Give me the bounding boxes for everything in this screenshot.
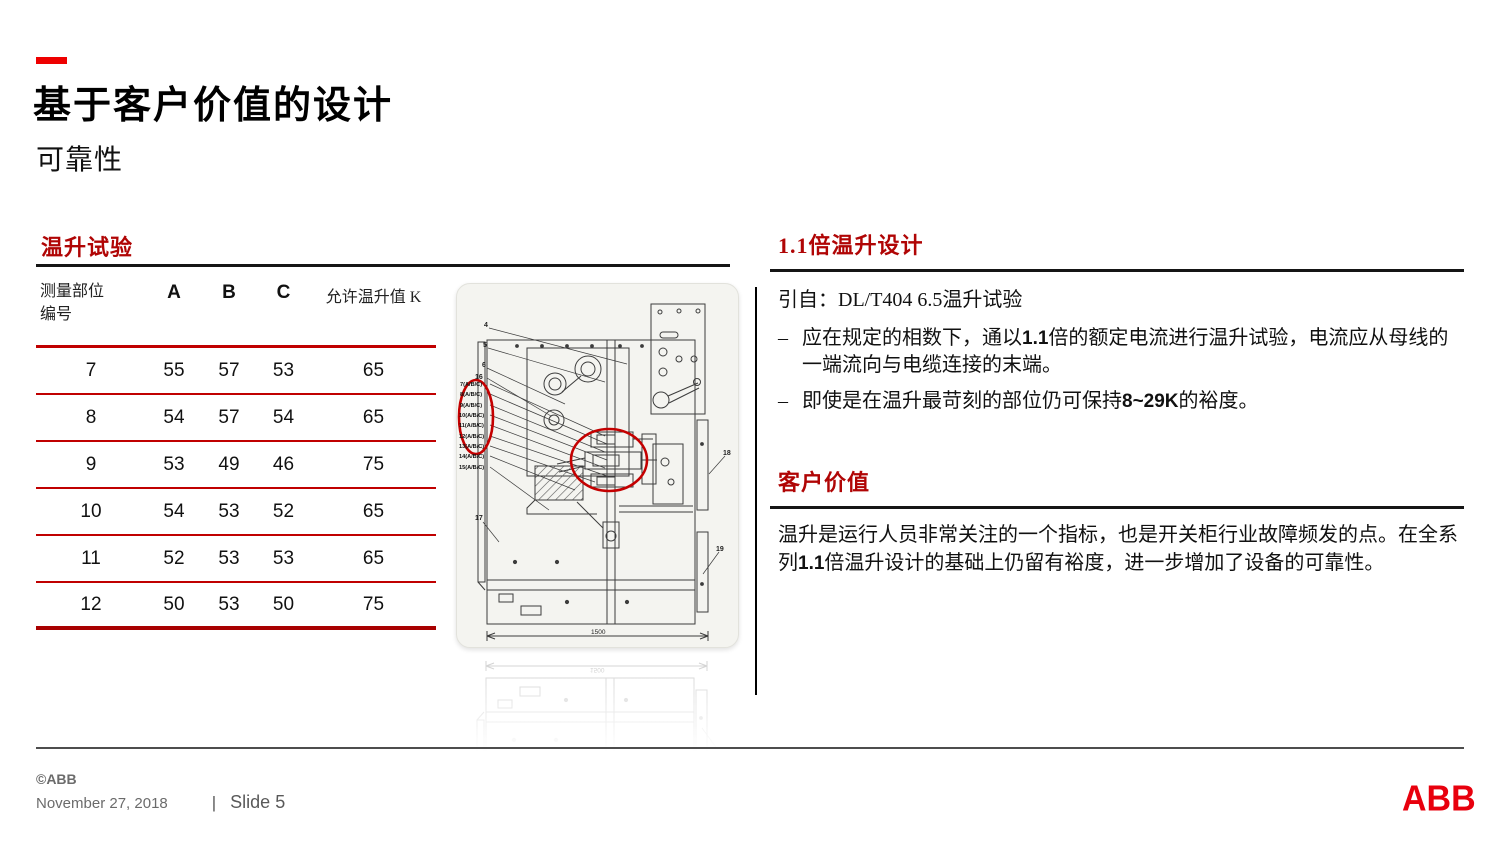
slide-number: Slide 5 bbox=[230, 792, 285, 813]
footer-separator: | bbox=[212, 793, 216, 813]
dimension-label: 1500 bbox=[591, 629, 606, 636]
right-column: 1.1倍温升设计 引自：DL/T404 6.5温升试验 – 应在规定的相数下，通… bbox=[770, 228, 1464, 578]
bullet-list: – 应在规定的相数下，通以1.1倍的额定电流进行温升试验，电流应从母线的一端流向… bbox=[778, 325, 1464, 415]
part-label: 10(A/B/C) bbox=[459, 413, 484, 419]
heading-rule bbox=[770, 269, 1464, 272]
part-label: 12(A/B/C) bbox=[459, 434, 484, 440]
bullet-item: – 即使是在温升最苛刻的部位仍可保持8~29K的裕度。 bbox=[778, 388, 1464, 415]
section-heading-customer-value: 客户价值 bbox=[778, 465, 1464, 497]
customer-value-paragraph: 温升是运行人员非常关注的一个指标，也是开关柜行业故障频发的点。在全系列1.1倍温… bbox=[778, 521, 1458, 578]
callout-19: 19 bbox=[716, 546, 724, 553]
heading-rule bbox=[770, 506, 1464, 509]
copyright-text: ©ABB bbox=[36, 771, 77, 787]
temp-rise-table: 测量部位 编号 A B C 允许温升值 K 755575365 85457546… bbox=[36, 280, 436, 630]
callout-6: 6 bbox=[482, 362, 486, 369]
part-label: 13(A/B/C) bbox=[459, 444, 484, 450]
page-subtitle: 可靠性 bbox=[36, 138, 123, 178]
callout-5: 5 bbox=[483, 342, 487, 349]
bullet-marker: – bbox=[778, 325, 802, 379]
table-row: 755575365 bbox=[36, 348, 436, 395]
bullet-item: – 应在规定的相数下，通以1.1倍的额定电流进行温升试验，电流应从母线的一端流向… bbox=[778, 325, 1464, 379]
footer-meta: November 27, 2018 | Slide 5 bbox=[36, 792, 285, 813]
accent-dash bbox=[36, 57, 67, 64]
callout-4: 4 bbox=[484, 322, 488, 329]
callout-17: 17 bbox=[475, 515, 483, 522]
page-title: 基于客户价值的设计 bbox=[33, 74, 393, 129]
part-label: 11(A/B/C) bbox=[459, 423, 484, 429]
heading-rule bbox=[36, 264, 730, 267]
abb-logo: ABB bbox=[1402, 779, 1476, 820]
part-label: 9(A/B/C) bbox=[460, 403, 482, 409]
col-header-measure-point: 测量部位 编号 bbox=[36, 280, 146, 331]
part-label: 7(A/B/C) bbox=[460, 382, 482, 388]
switchgear-drawing: 4 5 6 16 17 18 19 7(A/B/C) 8(A/B/C) 9(A/… bbox=[456, 283, 739, 648]
table-row: 953494675 bbox=[36, 442, 436, 489]
table-header-row: 测量部位 编号 A B C 允许温升值 K bbox=[36, 280, 436, 348]
callout-18: 18 bbox=[723, 450, 731, 457]
col-header-a: A bbox=[146, 280, 202, 331]
section-heading-temp-rise-test: 温升试验 bbox=[41, 230, 133, 262]
col-header-b: B bbox=[202, 280, 256, 331]
table-row: 1152535365 bbox=[36, 536, 436, 583]
bullet-marker: – bbox=[778, 388, 802, 415]
part-label: 8(A/B/C) bbox=[460, 392, 482, 398]
footer-divider bbox=[36, 747, 1464, 749]
col-header-allowed-k: 允许温升值 K bbox=[311, 280, 436, 331]
table-row: 1250535075 bbox=[36, 583, 436, 630]
table-row: 1054535265 bbox=[36, 489, 436, 536]
section-heading-1-1x-design: 1.1倍温升设计 bbox=[778, 228, 1464, 260]
citation-line: 引自：DL/T404 6.5温升试验 bbox=[778, 283, 1464, 312]
vertical-divider bbox=[755, 287, 757, 695]
table-row: 854575465 bbox=[36, 395, 436, 442]
part-label: 14(A/B/C) bbox=[459, 454, 484, 460]
footer-date: November 27, 2018 bbox=[36, 795, 168, 812]
part-label: 15(A/B/C) bbox=[459, 465, 484, 471]
col-header-c: C bbox=[256, 280, 311, 331]
callout-16: 16 bbox=[475, 374, 483, 381]
